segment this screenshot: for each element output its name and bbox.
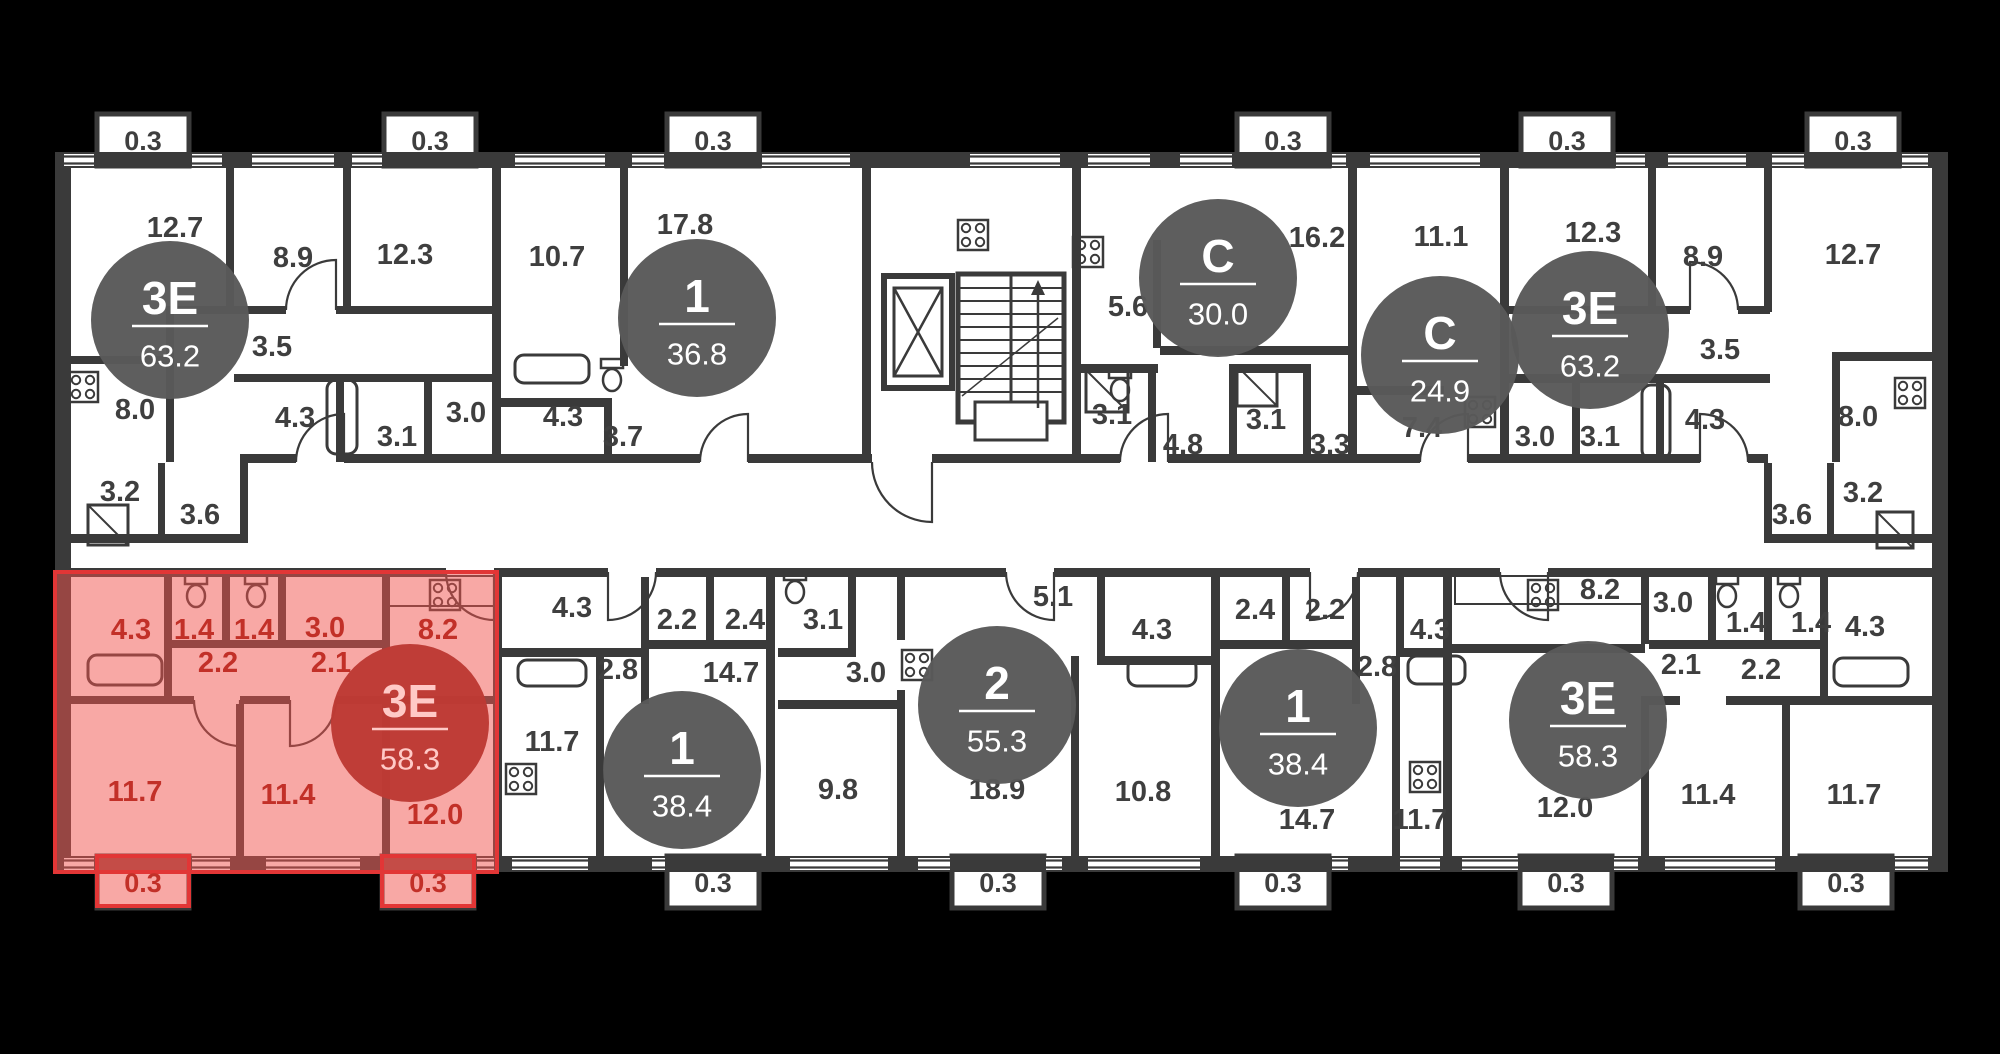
badge-apartment-type: 3Е xyxy=(142,272,198,324)
badge-apartment-area: 38.4 xyxy=(652,789,712,824)
room-area-label: 2.4 xyxy=(725,604,765,636)
room-area-label: 3.7 xyxy=(603,421,643,453)
room-area-label: 2.2 xyxy=(1305,594,1345,626)
room-area-label: 1.4 xyxy=(234,614,274,646)
badge-apartment-type: С xyxy=(1201,230,1234,282)
badge-apartment-type: 1 xyxy=(684,270,710,322)
balcony-area-label: 0.3 xyxy=(409,868,447,898)
apartment-badge[interactable]: 3Е58.3 xyxy=(1509,641,1667,799)
apartment-badge[interactable]: 3Е63.2 xyxy=(91,241,249,399)
apartment-badge[interactable]: 3Е58.3 xyxy=(331,644,489,802)
room-area-label: 8.2 xyxy=(1580,574,1620,606)
balcony-area-label: 0.3 xyxy=(1827,868,1865,898)
room-area-label: 12.3 xyxy=(1565,217,1621,249)
badge-apartment-area: 58.3 xyxy=(380,742,440,777)
balcony-area-label: 0.3 xyxy=(411,126,449,156)
room-area-label: 12.0 xyxy=(407,799,463,831)
room-area-label: 3.2 xyxy=(1843,477,1883,509)
badge-apartment-type: 1 xyxy=(1285,680,1311,732)
badge-apartment-type: 1 xyxy=(669,722,695,774)
apartment-badge[interactable]: 138.4 xyxy=(603,691,761,849)
room-area-label: 11.4 xyxy=(261,779,316,811)
room-area-label: 3.1 xyxy=(377,421,417,453)
room-area-label: 4.3 xyxy=(1685,404,1725,436)
room-area-label: 1.4 xyxy=(174,614,214,646)
room-area-label: 1.4 xyxy=(1791,607,1831,639)
room-area-label: 4.3 xyxy=(543,401,583,433)
room-area-label: 10.8 xyxy=(1115,776,1171,808)
room-area-label: 2.1 xyxy=(1661,649,1701,681)
room-area-label: 14.7 xyxy=(703,657,759,689)
room-area-label: 3.0 xyxy=(305,612,345,644)
balcony-area-label: 0.3 xyxy=(124,126,162,156)
room-area-label: 11.4 xyxy=(1681,779,1736,811)
room-area-label: 11.7 xyxy=(525,726,580,758)
room-area-label: 3.3 xyxy=(1310,429,1350,461)
balcony-area-label: 0.3 xyxy=(979,868,1017,898)
room-area-label: 8.9 xyxy=(273,242,313,274)
balcony-area-label: 0.3 xyxy=(694,126,732,156)
room-area-label: 3.0 xyxy=(1515,421,1555,453)
badge-apartment-area: 38.4 xyxy=(1268,747,1328,782)
badge-apartment-area: 63.2 xyxy=(1560,349,1620,384)
room-area-label: 4.3 xyxy=(552,592,592,624)
badge-apartment-type: С xyxy=(1423,307,1456,359)
room-area-label: 3.0 xyxy=(446,397,486,429)
room-area-label: 3.6 xyxy=(1772,499,1812,531)
floorplan-stage: 0.30.30.30.30.30.30.30.30.30.30.30.30.3 … xyxy=(0,0,2000,1054)
apartment-badge[interactable]: 138.4 xyxy=(1219,649,1377,807)
room-area-label: 3.5 xyxy=(252,331,292,363)
balcony-area-label: 0.3 xyxy=(1547,868,1585,898)
badge-apartment-type: 3Е xyxy=(1562,282,1618,334)
room-area-label: 8.2 xyxy=(418,614,458,646)
room-area-label: 4.3 xyxy=(1845,611,1885,643)
apartment-badge[interactable]: 3Е63.2 xyxy=(1511,251,1669,409)
room-area-label: 11.1 xyxy=(1414,221,1469,253)
room-area-label: 3.0 xyxy=(846,657,886,689)
apartment-badge[interactable]: С30.0 xyxy=(1139,199,1297,357)
room-area-label: 4.3 xyxy=(111,614,151,646)
balcony-area-label: 0.3 xyxy=(124,868,162,898)
room-area-label: 2.2 xyxy=(657,604,697,636)
room-area-label: 4.8 xyxy=(1163,429,1203,461)
room-area-label: 5.1 xyxy=(1033,581,1073,613)
room-area-label: 8.9 xyxy=(1683,241,1723,273)
room-area-label: 3.6 xyxy=(180,499,220,531)
room-area-label: 3.1 xyxy=(1092,399,1132,431)
room-area-label: 3.0 xyxy=(1653,587,1693,619)
badge-apartment-type: 3Е xyxy=(382,675,438,727)
badge-apartment-area: 36.8 xyxy=(667,337,727,372)
balcony-area-label: 0.3 xyxy=(1264,126,1302,156)
room-area-label: 3.5 xyxy=(1700,334,1740,366)
badge-apartment-area: 24.9 xyxy=(1410,374,1470,409)
room-area-label: 17.8 xyxy=(657,209,713,241)
badge-apartment-area: 58.3 xyxy=(1558,739,1618,774)
room-area-label: 3.1 xyxy=(1580,421,1620,453)
badge-apartment-type: 3Е xyxy=(1560,672,1616,724)
apartment-badge[interactable]: С24.9 xyxy=(1361,276,1519,434)
room-area-label: 4.3 xyxy=(275,402,315,434)
badge-apartment-type: 2 xyxy=(984,657,1010,709)
floor-plan: 0.30.30.30.30.30.30.30.30.30.30.30.30.3 … xyxy=(0,0,2000,1054)
room-area-label: 12.3 xyxy=(377,239,433,271)
balcony-area-label: 0.3 xyxy=(1548,126,1586,156)
room-area-label: 11.7 xyxy=(1393,804,1448,836)
room-area-label: 2.1 xyxy=(311,647,351,679)
badge-apartment-area: 55.3 xyxy=(967,724,1027,759)
balcony-area-label: 0.3 xyxy=(1834,126,1872,156)
room-area-label: 3.1 xyxy=(803,604,843,636)
room-area-label: 1.4 xyxy=(1726,607,1766,639)
room-area-label: 3.1 xyxy=(1246,404,1286,436)
room-area-label: 2.8 xyxy=(598,654,638,686)
room-area-label: 2.2 xyxy=(198,647,238,679)
room-area-label: 11.7 xyxy=(1827,779,1882,811)
room-area-label: 11.7 xyxy=(108,776,163,808)
balcony-area-label: 0.3 xyxy=(1264,868,1302,898)
room-area-label: 16.2 xyxy=(1289,222,1345,254)
apartment-badge[interactable]: 136.8 xyxy=(618,239,776,397)
room-area-label: 8.0 xyxy=(1838,401,1878,433)
room-area-label: 4.3 xyxy=(1410,614,1450,646)
room-area-label: 14.7 xyxy=(1279,804,1335,836)
badge-apartment-area: 63.2 xyxy=(140,339,200,374)
badge-apartment-area: 30.0 xyxy=(1188,297,1248,332)
room-area-label: 12.7 xyxy=(1825,239,1881,271)
room-area-label: 10.7 xyxy=(529,241,585,273)
room-area-label: 12.7 xyxy=(147,212,203,244)
room-area-label: 2.2 xyxy=(1741,654,1781,686)
room-area-label: 9.8 xyxy=(818,774,858,806)
room-area-label: 2.4 xyxy=(1235,594,1275,626)
apartment-badge[interactable]: 255.3 xyxy=(918,626,1076,784)
room-area-label: 2.8 xyxy=(1357,651,1397,683)
room-area-label: 3.2 xyxy=(100,476,140,508)
balcony-area-label: 0.3 xyxy=(694,868,732,898)
room-area-label: 8.0 xyxy=(115,394,155,426)
room-area-label: 4.3 xyxy=(1132,614,1172,646)
